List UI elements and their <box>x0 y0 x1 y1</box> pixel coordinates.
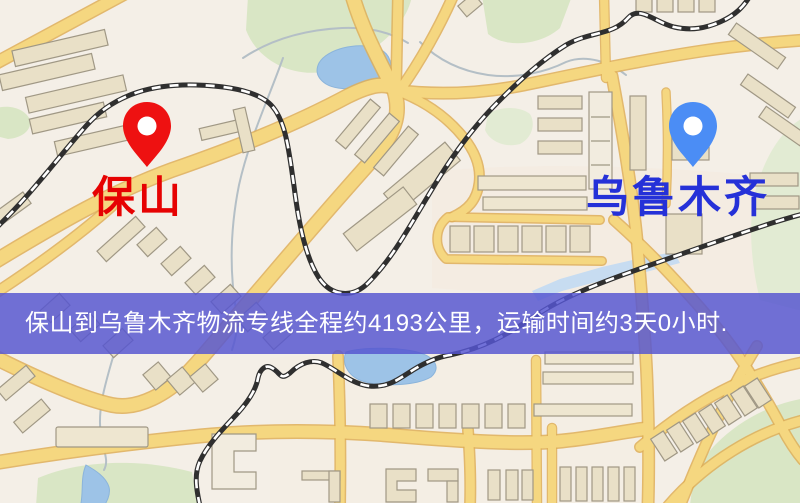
logistics-route-map: 保山到乌鲁木齐物流专线全程约4193公里，运输时间约3天0小时. 保山 乌鲁木齐 <box>0 0 800 503</box>
route-info-text: 保山到乌鲁木齐物流专线全程约4193公里，运输时间约3天0小时. <box>25 312 728 336</box>
destination-city-label: 乌鲁木齐 <box>586 177 770 220</box>
route-info-banner: 保山到乌鲁木齐物流专线全程约4193公里，运输时间约3天0小时. <box>0 293 800 354</box>
origin-city-label: 保山 <box>92 177 184 220</box>
map-illustration <box>0 0 800 503</box>
origin-map-pin-icon <box>121 101 173 169</box>
destination-map-pin-icon <box>667 101 719 169</box>
